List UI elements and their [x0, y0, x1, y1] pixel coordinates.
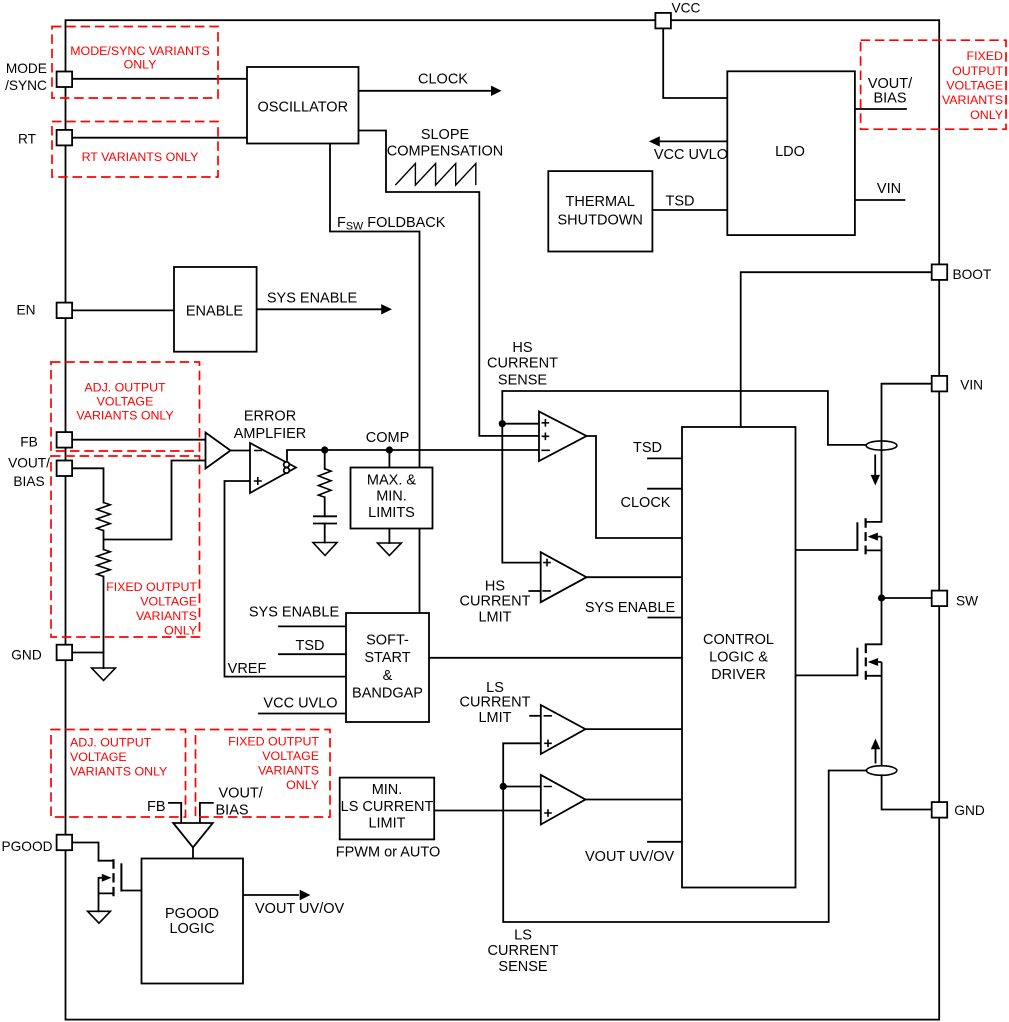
svg-text:VOUT UV/OV: VOUT UV/OV [585, 849, 674, 865]
svg-text:VOLTAGE: VOLTAGE [262, 749, 319, 763]
svg-text:VCC: VCC [672, 1, 701, 16]
svg-text:LIMITS: LIMITS [368, 505, 415, 521]
svg-text:LDO: LDO [775, 144, 805, 160]
svg-text:SENSE: SENSE [498, 373, 547, 389]
svg-text:FPWM or AUTO: FPWM or AUTO [336, 845, 440, 861]
svg-text:VARIANTS: VARIANTS [942, 93, 1003, 107]
svg-text:VOLTAGE: VOLTAGE [946, 79, 1003, 93]
svg-text:START: START [364, 650, 410, 666]
svg-text:TSD: TSD [296, 638, 325, 654]
svg-text:HS: HS [485, 579, 505, 595]
svg-text:FIXED: FIXED [967, 49, 1004, 63]
svg-text:&: & [383, 668, 393, 684]
svg-text:CLOCK: CLOCK [418, 72, 468, 88]
svg-text:VARIANTS: VARIANTS [258, 764, 319, 778]
svg-text:CURRENT: CURRENT [460, 594, 531, 610]
svg-text:VIN: VIN [960, 378, 983, 393]
svg-text:VREF: VREF [228, 661, 267, 677]
svg-text:PGOOD: PGOOD [165, 906, 219, 922]
svg-text:FB: FB [20, 434, 38, 449]
svg-text:TSD: TSD [666, 194, 695, 210]
svg-text:VIN: VIN [877, 181, 901, 197]
svg-text:VOUT/: VOUT/ [219, 785, 264, 801]
svg-text:SHUTDOWN: SHUTDOWN [558, 213, 643, 229]
svg-text:LMIT: LMIT [478, 710, 511, 726]
svg-text:PGOOD: PGOOD [2, 839, 53, 854]
svg-text:MODE/SYNC VARIANTS: MODE/SYNC VARIANTS [70, 44, 210, 58]
svg-text:CLOCK: CLOCK [621, 495, 671, 511]
svg-text:BOOT: BOOT [953, 267, 992, 282]
svg-text:SLOPE: SLOPE [421, 127, 470, 143]
svg-text:LOGIC: LOGIC [169, 921, 214, 937]
svg-text:ONLY: ONLY [164, 624, 197, 638]
svg-text:AMPLFIER: AMPLFIER [234, 426, 307, 442]
svg-text:ENABLE: ENABLE [186, 304, 244, 320]
svg-text:FIXED OUTPUT: FIXED OUTPUT [106, 580, 197, 594]
svg-text:GND: GND [11, 648, 42, 663]
svg-text:RT: RT [18, 131, 37, 146]
svg-text:CONTROL: CONTROL [703, 632, 774, 648]
svg-text:ONLY: ONLY [124, 58, 157, 72]
svg-text:SYS ENABLE: SYS ENABLE [585, 600, 676, 616]
svg-text:VCC UVLO: VCC UVLO [654, 147, 728, 163]
svg-text:LMIT: LMIT [478, 610, 511, 626]
svg-text:ADJ. OUTPUT: ADJ. OUTPUT [84, 381, 166, 395]
svg-text:ONLY: ONLY [286, 778, 319, 792]
svg-text:RT VARIANTS ONLY: RT VARIANTS ONLY [82, 150, 199, 164]
svg-text:VARIANTS ONLY: VARIANTS ONLY [70, 765, 167, 779]
svg-text:BANDGAP: BANDGAP [352, 686, 423, 702]
svg-text:VOLTAGE: VOLTAGE [140, 595, 197, 609]
svg-text:COMP: COMP [366, 430, 410, 446]
svg-text:SYS ENABLE: SYS ENABLE [249, 605, 340, 621]
svg-text:ADJ. OUTPUT: ADJ. OUTPUT [70, 736, 152, 750]
svg-text:ERROR: ERROR [244, 409, 296, 425]
svg-text:MODE: MODE [6, 61, 47, 76]
svg-text:BIAS: BIAS [13, 474, 44, 489]
svg-text:HS: HS [512, 340, 532, 356]
svg-text:OSCILLATOR: OSCILLATOR [258, 99, 349, 115]
svg-text:LS: LS [514, 928, 532, 944]
svg-text:VOUT/: VOUT/ [8, 455, 50, 470]
svg-text:CURRENT: CURRENT [488, 943, 559, 959]
svg-text:BIAS: BIAS [873, 91, 906, 107]
svg-text:SOFT-: SOFT- [366, 633, 409, 649]
svg-text:FIXED OUTPUT: FIXED OUTPUT [228, 735, 319, 749]
svg-text:MIN.: MIN. [376, 489, 407, 505]
svg-text:OUTPUT: OUTPUT [952, 64, 1003, 78]
svg-text:FB: FB [147, 799, 166, 815]
svg-text:VOUT UV/OV: VOUT UV/OV [255, 901, 344, 917]
svg-text:DRIVER: DRIVER [711, 667, 766, 683]
svg-text:VCC UVLO: VCC UVLO [263, 696, 337, 712]
svg-text:/SYNC: /SYNC [5, 78, 47, 93]
svg-text:BIAS: BIAS [216, 803, 249, 819]
svg-text:LOGIC &: LOGIC & [709, 650, 768, 666]
svg-text:VARIANTS ONLY: VARIANTS ONLY [76, 409, 173, 423]
svg-text:CURRENT: CURRENT [487, 356, 558, 372]
svg-text:SW: SW [956, 593, 978, 608]
svg-text:CURRENT: CURRENT [460, 695, 531, 711]
svg-text:VOLTAGE: VOLTAGE [70, 750, 127, 764]
svg-text:MIN.: MIN. [372, 782, 403, 798]
svg-text:SENSE: SENSE [498, 959, 547, 975]
svg-text:ONLY: ONLY [970, 108, 1003, 122]
svg-text:MAX. &: MAX. & [367, 473, 416, 489]
svg-text:EN: EN [16, 303, 35, 318]
svg-text:TSD: TSD [633, 440, 662, 456]
svg-text:VARIANTS: VARIANTS [136, 609, 197, 623]
svg-text:GND: GND [954, 803, 985, 818]
svg-text:LIMIT: LIMIT [368, 816, 405, 832]
svg-text:VOLTAGE: VOLTAGE [97, 395, 154, 409]
svg-text:THERMAL: THERMAL [566, 194, 635, 210]
svg-text:SYS ENABLE: SYS ENABLE [267, 291, 358, 307]
svg-text:COMPENSATION: COMPENSATION [387, 144, 504, 160]
svg-text:LS CURRENT: LS CURRENT [341, 799, 434, 815]
